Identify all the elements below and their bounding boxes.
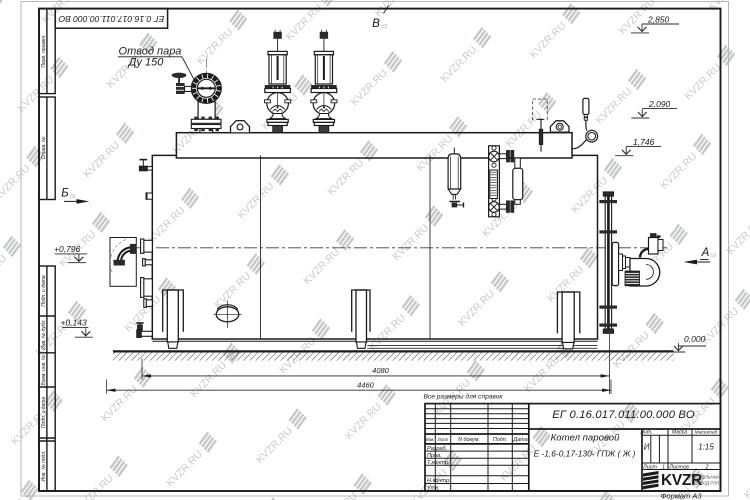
svg-text:0,000: 0,000: [684, 334, 706, 344]
svg-text:В: В: [372, 18, 380, 30]
svg-text:Инв. № дубл.: Инв. № дубл.: [41, 319, 47, 350]
svg-text:Взам. инв. №: Взам. инв. №: [41, 354, 47, 386]
svg-text:+0,796: +0,796: [54, 244, 81, 254]
svg-text:Н.контр.: Н.контр.: [427, 478, 451, 484]
svg-text:Лист: Лист: [642, 464, 657, 470]
svg-text:N докум.: N докум.: [458, 437, 480, 443]
svg-text:1: 1: [662, 464, 665, 470]
svg-text:Ду 150: Ду 150: [127, 57, 165, 69]
svg-text:А: А: [701, 247, 710, 259]
svg-text:Подп. и дата: Подп. и дата: [41, 275, 47, 307]
svg-text:И: И: [644, 443, 650, 452]
svg-text:Утв.: Утв.: [426, 486, 440, 492]
svg-text:Разраб.: Разраб.: [427, 446, 447, 452]
svg-text:(2): (2): [70, 194, 76, 199]
svg-text:4080: 4080: [372, 366, 390, 375]
svg-text:4460: 4460: [357, 381, 375, 390]
svg-text:Все размеры для справок: Все размеры для справок: [424, 392, 504, 400]
svg-text:1,746: 1,746: [633, 137, 655, 147]
svg-text:Котел паровой: Котел паровой: [551, 433, 620, 444]
svg-text:Инв. № подл.: Инв. № подл.: [41, 450, 47, 481]
svg-text:+0,143: +0,143: [61, 318, 88, 328]
svg-text:Т.контр.: Т.контр.: [427, 460, 450, 466]
svg-text:Лист: Лист: [437, 437, 449, 442]
svg-text:2,850: 2,850: [647, 14, 670, 24]
svg-text:Формат А3: Формат А3: [660, 492, 702, 500]
svg-text:ЗАВОД РЭП: ЗАВОД РЭП: [695, 481, 720, 486]
svg-text:Дата: Дата: [512, 437, 527, 443]
svg-text:Листов: Листов: [668, 464, 689, 470]
svg-text:Подп.: Подп.: [493, 437, 507, 443]
svg-text:1:15: 1:15: [698, 443, 714, 452]
svg-text:2,090: 2,090: [648, 99, 671, 109]
svg-text:Изм.: Изм.: [426, 437, 435, 442]
svg-text:ЕГ 0.16.017.011.00.000 ВО: ЕГ 0.16.017.011.00.000 ВО: [552, 409, 695, 421]
svg-text:Перв. примен.: Перв. примен.: [41, 34, 47, 67]
svg-text:Е -1,6-0,17-130- ГПЖ ( Ж ): Е -1,6-0,17-130- ГПЖ ( Ж ): [534, 449, 636, 459]
svg-text:Справ. №: Справ. №: [41, 136, 47, 159]
svg-text:ЕГ 0.16.017.011.00.000 ВО: ЕГ 0.16.017.011.00.000 ВО: [58, 14, 164, 24]
svg-text:Б: Б: [61, 188, 69, 200]
svg-text:Пров.: Пров.: [427, 453, 442, 459]
svg-text:КОТЕЛЬНЫЙ: КОТЕЛЬНЫЙ: [694, 475, 720, 480]
svg-text:(2): (2): [382, 24, 388, 29]
svg-text:Лит.: Лит.: [639, 430, 652, 436]
svg-text:Подп. и дата: Подп. и дата: [41, 397, 47, 429]
svg-text:Масса: Масса: [672, 430, 687, 436]
svg-text:2: 2: [705, 464, 709, 470]
svg-text:(2): (2): [711, 253, 717, 258]
svg-text:Масштаб: Масштаб: [695, 430, 718, 436]
